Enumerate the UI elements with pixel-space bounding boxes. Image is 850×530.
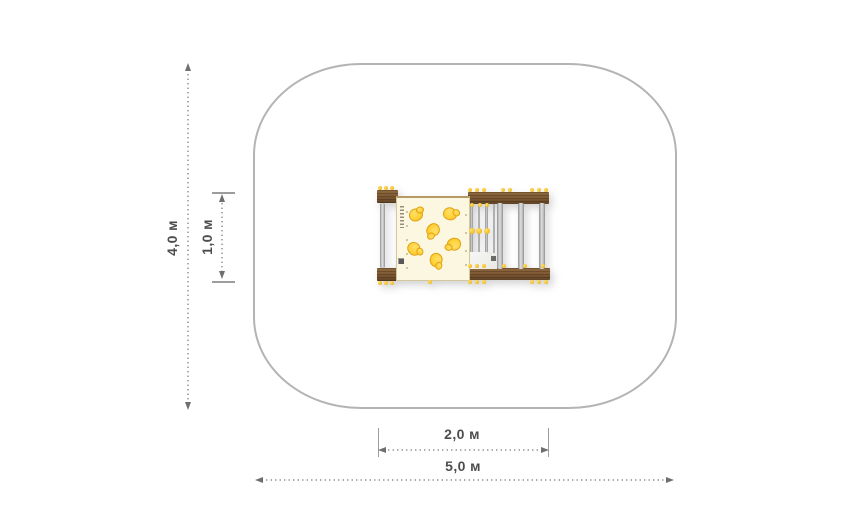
bolt-icon	[485, 203, 489, 207]
dim-label-equipment-width: 2,0 м	[444, 426, 480, 442]
ladder-rung	[493, 204, 496, 253]
dim-line-equipment-width	[382, 449, 544, 451]
panel-rivet	[465, 232, 467, 234]
climbing-hold	[440, 205, 459, 224]
bolt-icon	[468, 280, 472, 284]
panel-rivet	[406, 267, 408, 269]
panel-rivet	[465, 250, 467, 252]
rung-connector-icon	[469, 228, 475, 234]
dim-label-equipment-depth: 1,0 м	[199, 219, 215, 255]
wood-beam-top-left	[377, 190, 398, 203]
bolt-icon	[428, 280, 432, 284]
bolt-icon	[482, 188, 486, 192]
climbing-hold	[406, 241, 422, 258]
bolt-icon	[502, 264, 506, 268]
bolt-icon	[537, 280, 541, 284]
bolt-icon	[470, 203, 474, 207]
climbing-hold	[409, 209, 423, 222]
dim-line-zone-height	[187, 68, 189, 405]
metal-post	[539, 203, 545, 269]
bolt-icon	[478, 203, 482, 207]
climbing-hold	[427, 251, 445, 269]
equipment-structure	[377, 186, 550, 286]
arrow-down-icon	[219, 271, 225, 279]
rung-connector-icon	[484, 228, 490, 234]
platform-corner-mark	[491, 256, 496, 261]
dim-label-zone-height: 4,0 м	[164, 220, 180, 256]
climbing-hold	[445, 235, 463, 252]
bolt-icon	[530, 280, 534, 284]
dim-tick-bottom	[212, 281, 235, 283]
bolt-icon	[508, 188, 512, 192]
panel-rivet	[406, 253, 408, 255]
panel-rivet	[406, 225, 408, 227]
dim-line-zone-width	[260, 479, 668, 481]
arrow-up-icon	[185, 63, 191, 71]
bolt-icon	[523, 264, 527, 268]
bolt-icon	[390, 186, 394, 190]
arrow-left-icon	[255, 477, 263, 483]
bolt-icon	[468, 264, 472, 268]
panel-rivet	[406, 211, 408, 213]
bolt-icon	[384, 186, 388, 190]
dim-line-equipment-depth	[221, 197, 223, 276]
bolt-icon	[475, 188, 479, 192]
metal-post-left	[380, 203, 385, 268]
climbing-panel	[396, 196, 470, 281]
bolt-icon	[501, 188, 505, 192]
diagram-canvas: 4,0 м 1,0 м 2,0 м 5,0 м	[0, 0, 850, 530]
bolt-icon	[537, 188, 541, 192]
climbing-hold	[424, 221, 442, 238]
bolt-icon	[530, 188, 534, 192]
panel-info-chip	[398, 258, 404, 264]
arrow-left-icon	[378, 447, 386, 453]
metal-post	[518, 203, 524, 269]
bolt-icon	[384, 281, 388, 285]
bolt-icon	[482, 264, 486, 268]
wood-beam-bottom-left	[377, 268, 398, 281]
arrow-right-icon	[541, 447, 549, 453]
bolt-icon	[378, 281, 382, 285]
panel-rivet	[406, 239, 408, 241]
arrow-down-icon	[185, 402, 191, 410]
bolt-icon	[468, 188, 472, 192]
arrow-right-icon	[666, 477, 674, 483]
panel-rivet	[465, 264, 467, 266]
bolt-icon	[475, 280, 479, 284]
bolt-icon	[541, 264, 545, 268]
arrow-up-icon	[219, 194, 225, 202]
dim-label-zone-width: 5,0 м	[445, 458, 481, 474]
wood-beam-bottom	[464, 268, 550, 280]
bolt-icon	[475, 264, 479, 268]
metal-post	[497, 203, 503, 269]
panel-brand-label	[400, 206, 404, 228]
bolt-icon	[378, 186, 382, 190]
dim-tick-right	[548, 428, 550, 457]
dim-tick-left	[378, 428, 380, 457]
bolt-icon	[544, 280, 548, 284]
bolt-icon	[390, 281, 394, 285]
rung-connector-icon	[476, 228, 482, 234]
bolt-icon	[482, 280, 486, 284]
panel-rivet	[465, 214, 467, 216]
bolt-icon	[544, 188, 548, 192]
